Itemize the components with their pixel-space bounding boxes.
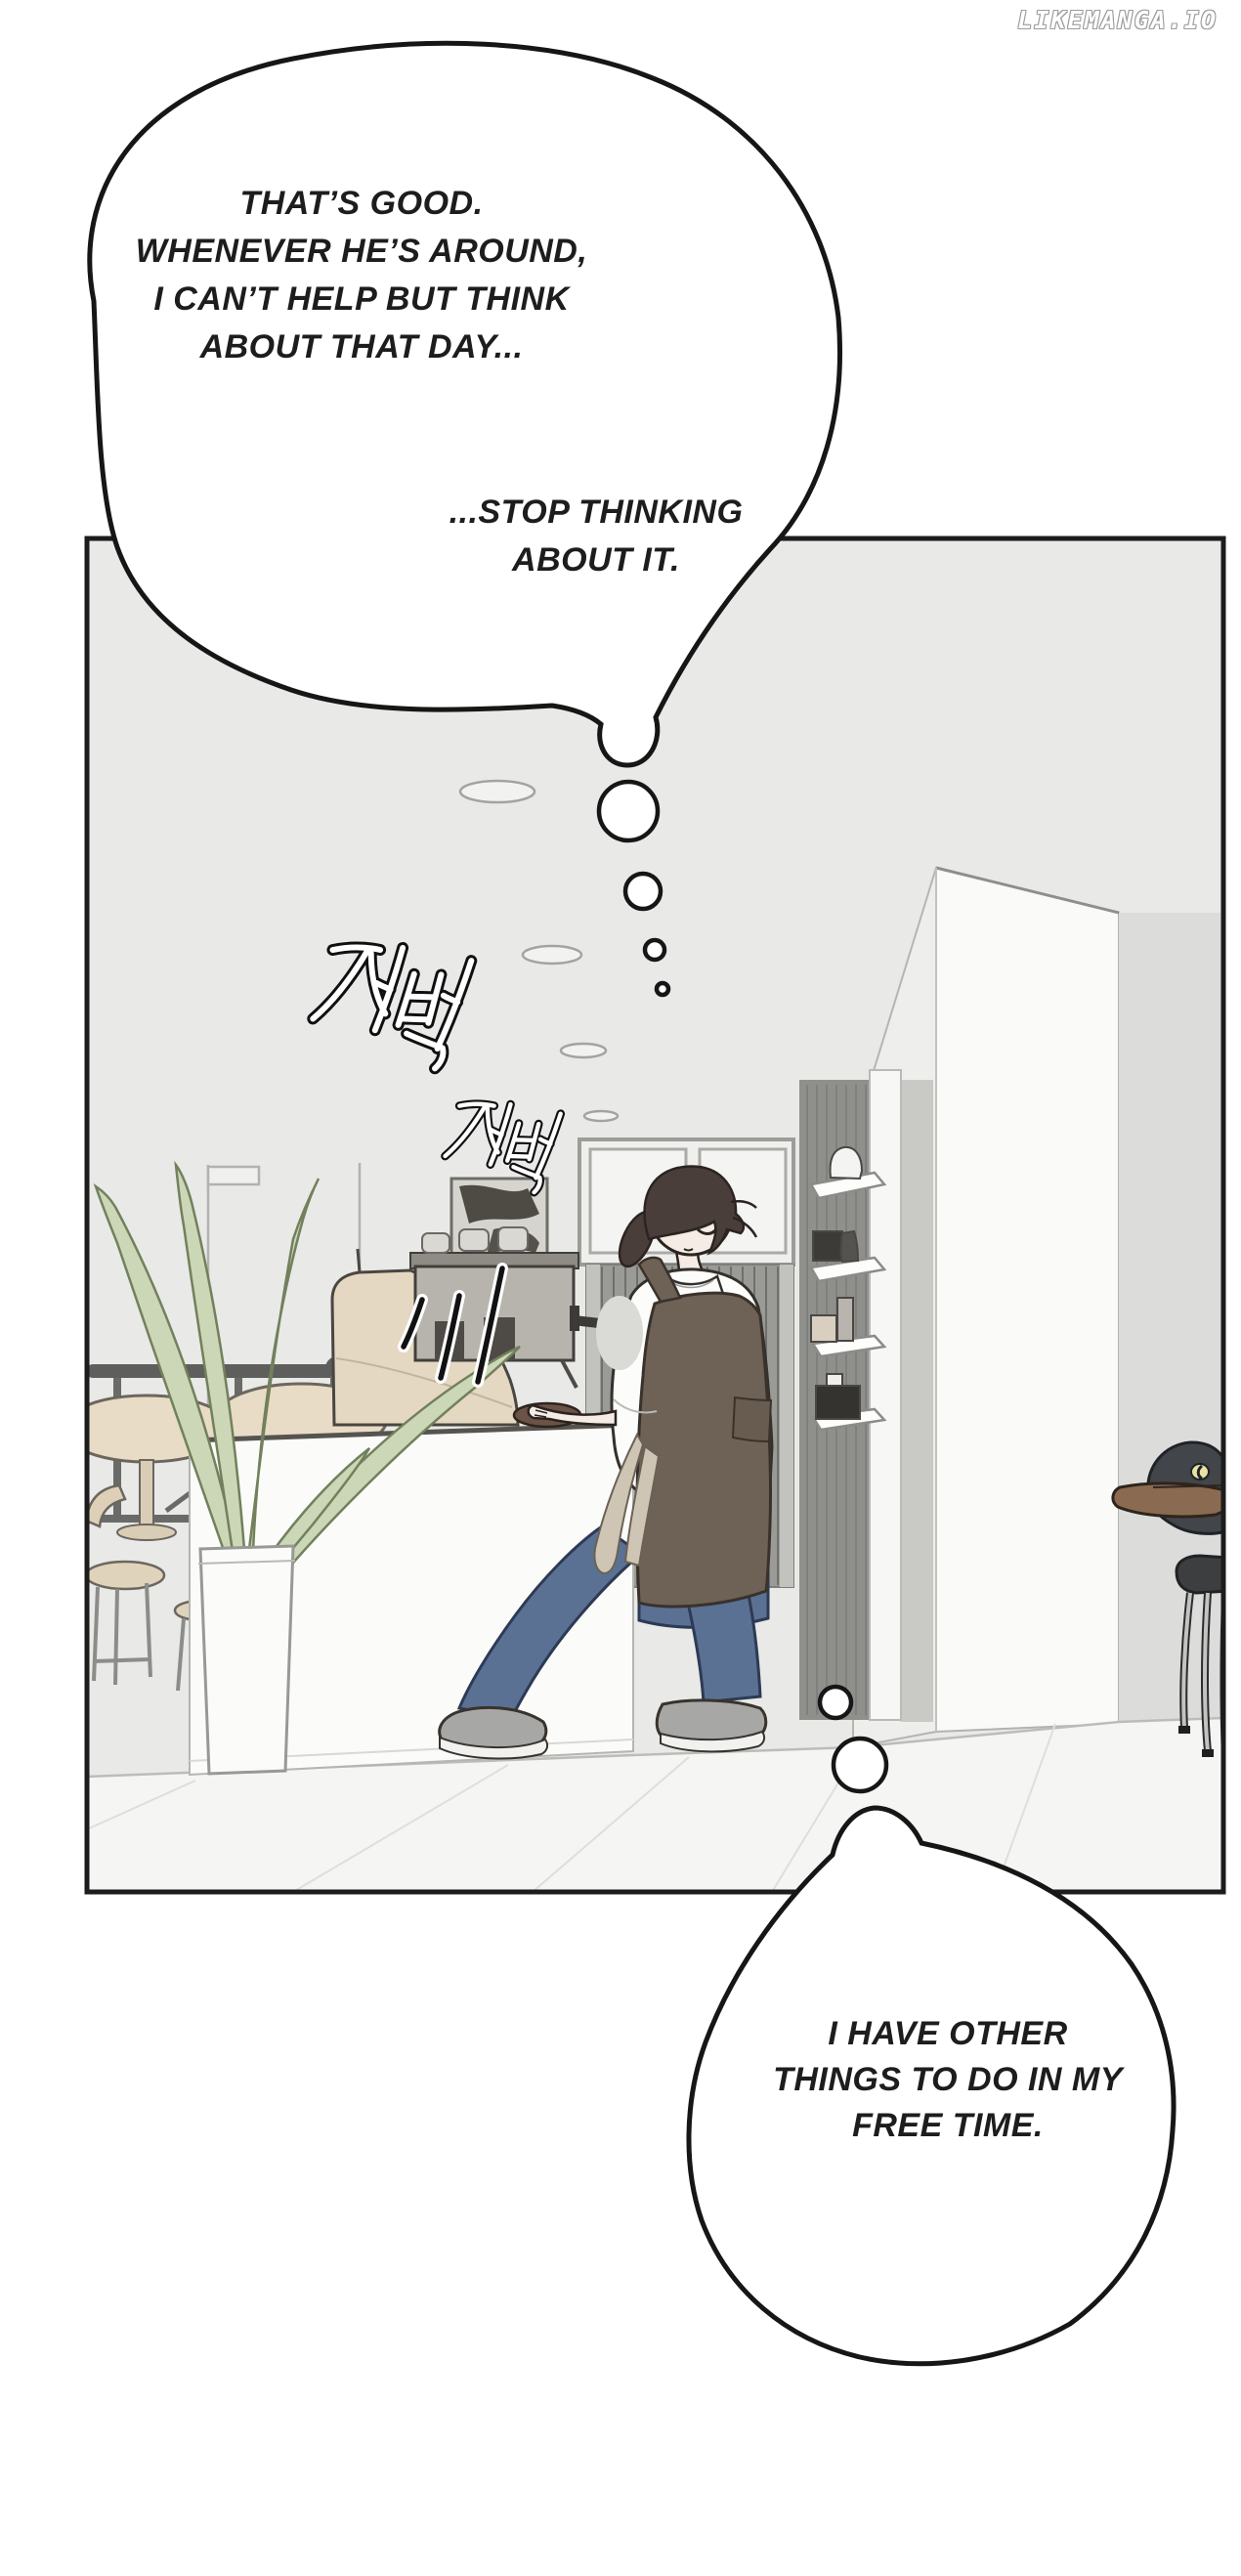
apron: [637, 1258, 771, 1607]
thought-line: FREE TIME.: [704, 2103, 1192, 2149]
site-watermark: LIKEMANGA.IO: [1017, 6, 1218, 34]
thought-text-top-main: THAT’S GOOD. WHENEVER HE’S AROUND, I CAN…: [117, 180, 606, 371]
thought-text-top-secondary: ...STOP THINKING ABOUT IT.: [445, 489, 748, 584]
white-cabinet: [936, 868, 1119, 1732]
manga-page: LIKEMANGA.IO THAT’S GOOD. WHENEVER HE’S …: [0, 0, 1241, 2576]
thought-line: THINGS TO DO IN MY: [704, 2057, 1192, 2103]
thought-line: ABOUT IT.: [445, 537, 748, 584]
thought-line: THAT’S GOOD.: [117, 180, 606, 228]
thought-text-bottom: I HAVE OTHER THINGS TO DO IN MY FREE TIM…: [704, 2011, 1192, 2149]
thought-line: WHENEVER HE’S AROUND,: [117, 228, 606, 276]
shelf-unit: [799, 1070, 933, 1722]
thought-line: ...STOP THINKING: [445, 489, 748, 537]
thought-line: ABOUT THAT DAY...: [117, 323, 606, 371]
manga-artwork: [0, 0, 1241, 2576]
thought-line: I CAN’T HELP BUT THINK: [117, 276, 606, 323]
thought-line: I HAVE OTHER: [704, 2011, 1192, 2057]
